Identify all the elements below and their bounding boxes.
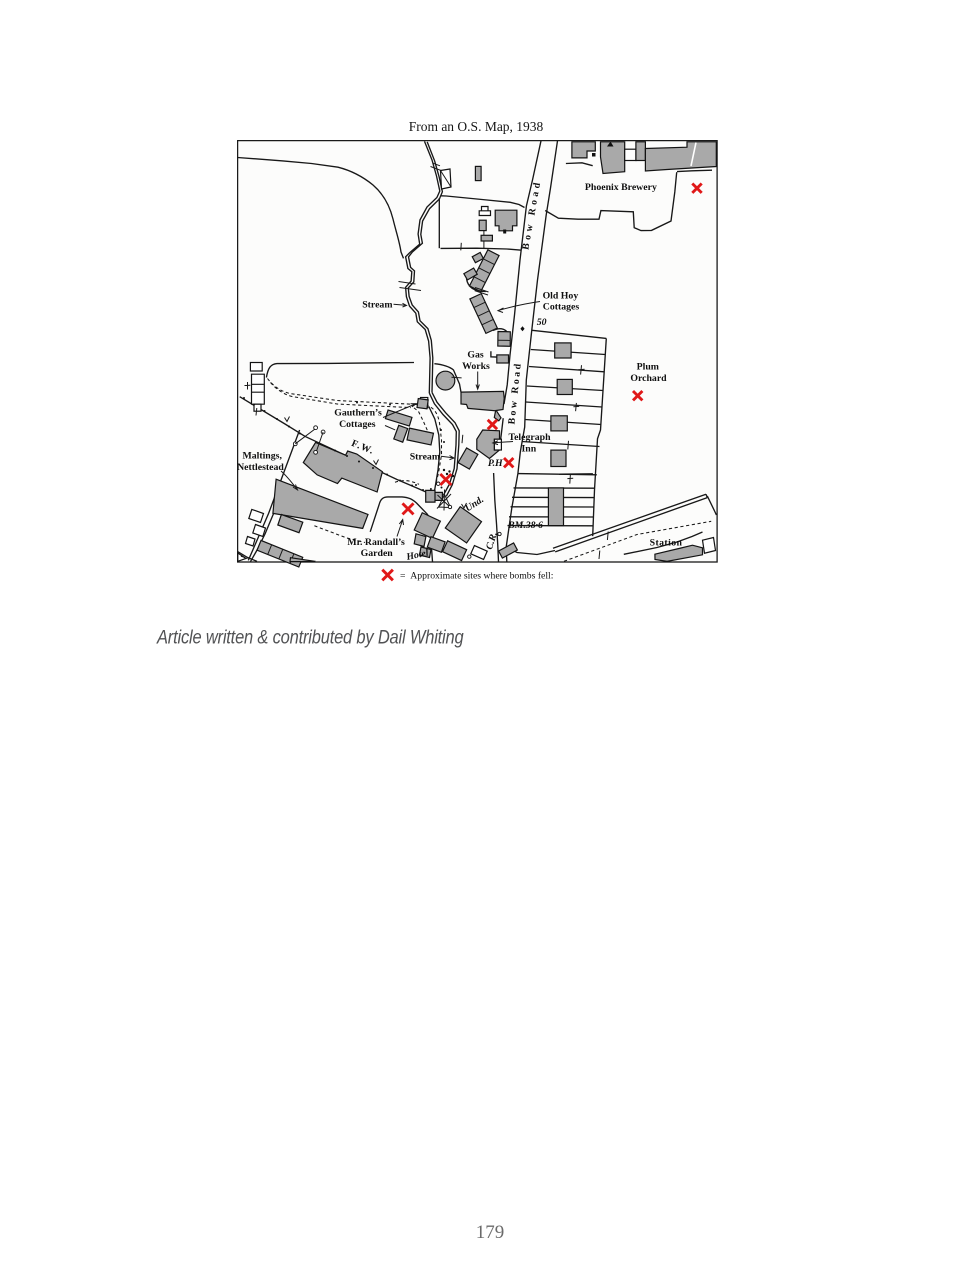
svg-text:Garden: Garden <box>360 548 393 559</box>
svg-text:BM.38·6: BM.38·6 <box>507 520 543 531</box>
svg-text:Works: Works <box>462 361 490 372</box>
svg-text:Maltings,: Maltings, <box>242 450 282 461</box>
svg-text:Gas: Gas <box>467 349 484 360</box>
svg-text:Orchard: Orchard <box>630 373 667 384</box>
svg-text:= Approximate sites where bom: = Approximate sites where bombs fell: <box>400 571 553 582</box>
svg-text:Plum: Plum <box>636 362 658 373</box>
svg-text:Cottages: Cottages <box>542 301 579 312</box>
svg-text:Station: Station <box>649 538 682 549</box>
svg-text:Gauthern’s: Gauthern’s <box>334 408 382 419</box>
svg-text:Mr. Randall’s: Mr. Randall’s <box>347 537 405 548</box>
svg-text:Inn: Inn <box>521 444 536 455</box>
svg-text:Phoenix Brewery: Phoenix Brewery <box>584 182 656 193</box>
svg-text:Old Hoy: Old Hoy <box>542 290 578 301</box>
svg-text:Stream: Stream <box>409 451 439 462</box>
svg-text:P.H: P.H <box>487 458 502 469</box>
svg-text:Stream: Stream <box>362 299 392 310</box>
svg-text:Nettlestead: Nettlestead <box>237 462 284 473</box>
svg-text:Telegraph: Telegraph <box>508 432 551 443</box>
svg-text:50: 50 <box>536 317 546 328</box>
svg-text:Cottages: Cottages <box>339 419 376 430</box>
